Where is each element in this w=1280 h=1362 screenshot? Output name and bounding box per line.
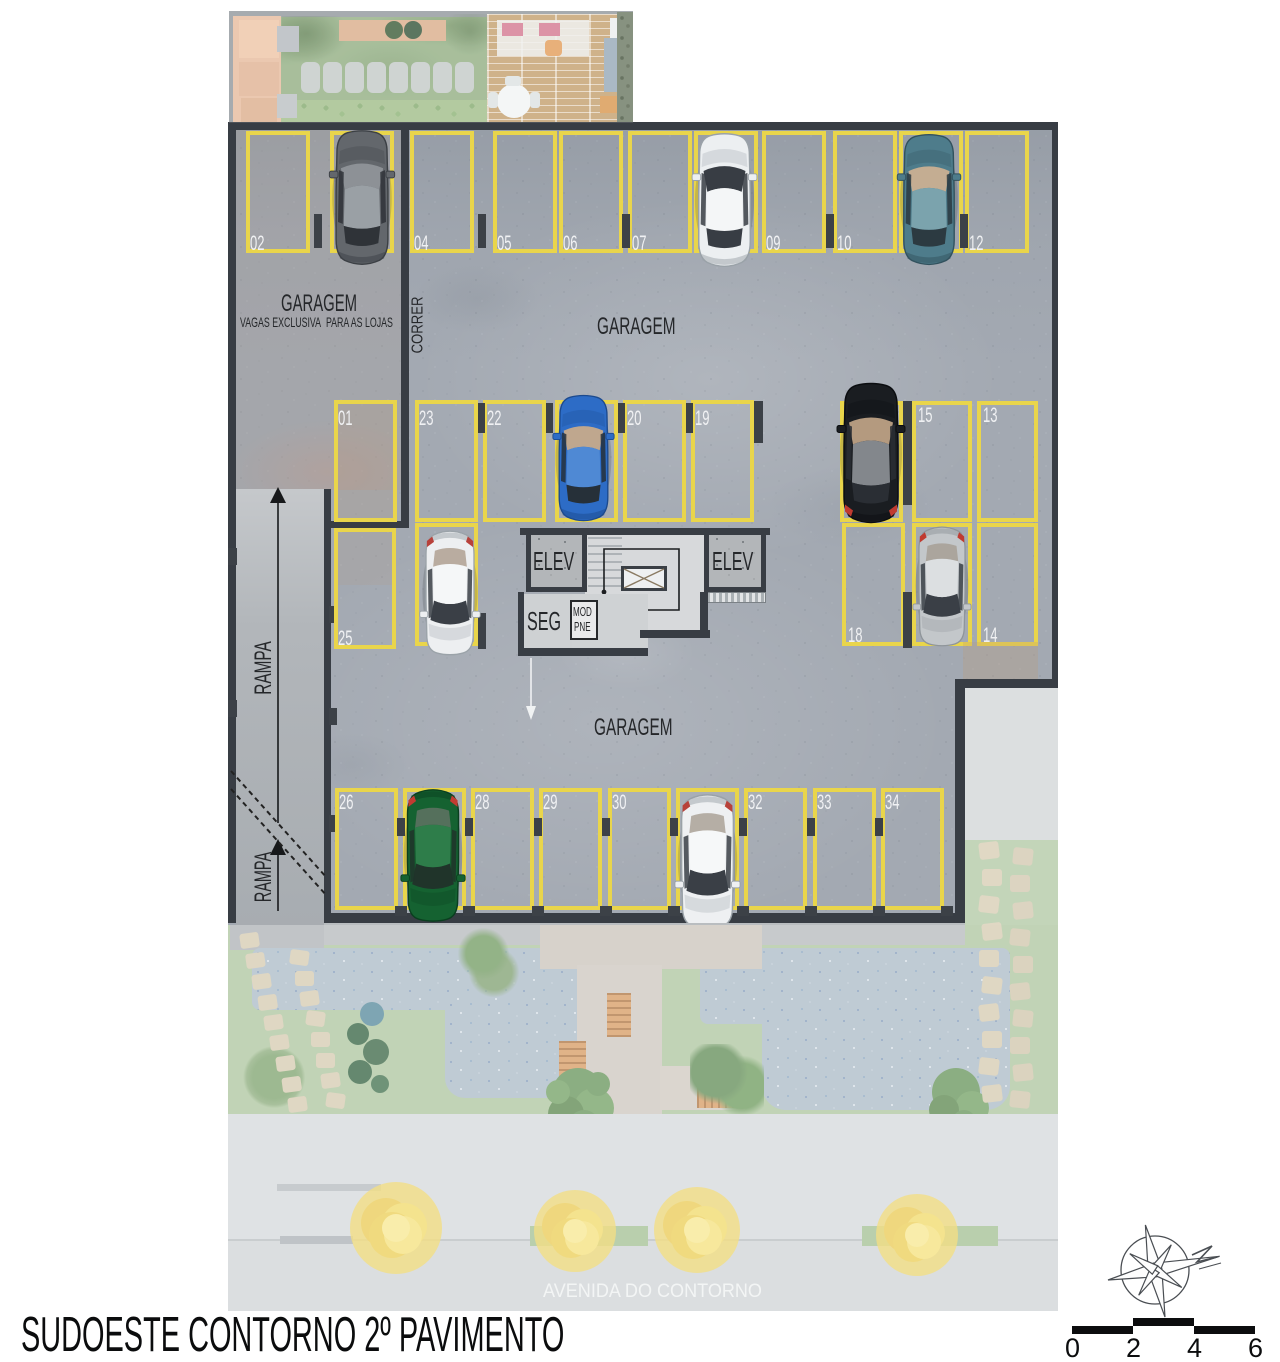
svg-text:2: 2 xyxy=(1126,1333,1141,1362)
svg-text:4: 4 xyxy=(1187,1333,1202,1362)
svg-text:0: 0 xyxy=(1065,1333,1080,1362)
svg-text:6: 6 xyxy=(1248,1333,1263,1362)
